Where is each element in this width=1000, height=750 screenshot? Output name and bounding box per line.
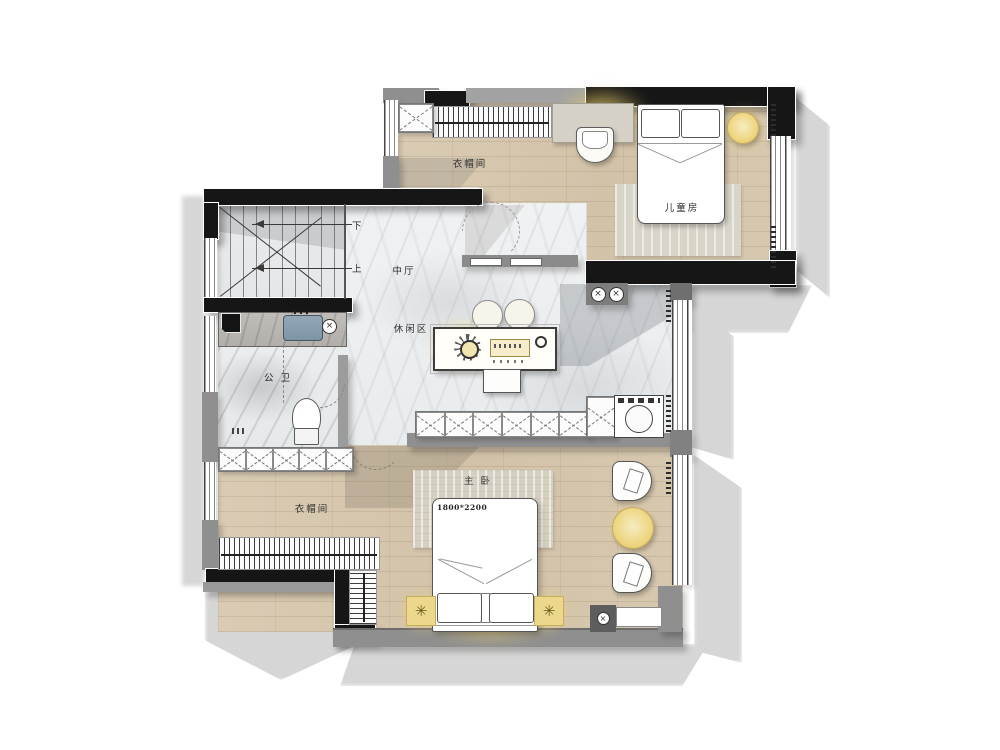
laundry-basket [221, 313, 241, 333]
wall [202, 392, 218, 462]
washer-panel [618, 398, 660, 403]
cabinet-cell [326, 448, 353, 471]
toilet-tank [294, 428, 319, 445]
cabinet-cell [246, 448, 273, 471]
stair-down-arrow [252, 224, 352, 225]
kids-corner-cabinet [398, 103, 434, 133]
cabinet-cell [416, 412, 445, 437]
armchair-cushion [623, 561, 644, 587]
kids-side-table [727, 112, 759, 144]
armchair [612, 553, 652, 593]
valve-icon: × [591, 287, 606, 302]
dimension-marks [666, 460, 671, 494]
tall-cabinet [586, 396, 616, 438]
cabinet-cell [473, 412, 502, 437]
stair-up-arrow [252, 268, 352, 269]
armchair [612, 461, 652, 501]
pillow [437, 593, 482, 623]
master-bedroom-label: 主 卧 [447, 473, 509, 487]
pillow [489, 593, 534, 623]
fixture-box: ×× [586, 283, 628, 305]
leisure-table [433, 327, 557, 371]
small-decor [535, 336, 547, 348]
shadow-below-bottom-wall [340, 644, 708, 686]
sliding-door-leaf [510, 258, 542, 266]
bench [483, 369, 521, 393]
desk-chair [576, 127, 614, 163]
nightstand-lamp: ✳ [534, 596, 564, 626]
window [204, 238, 217, 298]
stair-down-label: 下 [352, 218, 364, 232]
bathroom-storage-cabinets [218, 447, 354, 472]
tray-items [494, 344, 524, 348]
dimension-marks [771, 226, 776, 268]
laundry-counter-cabinets [415, 411, 589, 438]
master-bed: 1800*2200 [432, 498, 538, 632]
stair-rail [344, 204, 346, 299]
pillow [641, 109, 680, 138]
dimension-marks [666, 290, 671, 322]
chair-seat [582, 131, 608, 149]
wall [383, 156, 399, 189]
wall [203, 202, 219, 240]
leisure-area-label: 休闲区 [378, 321, 444, 335]
wall [203, 188, 483, 206]
hall-label: 中厅 [380, 263, 428, 277]
dimension-marks [771, 104, 776, 136]
bed-size-label: 1800*2200 [437, 503, 487, 512]
window [204, 462, 216, 520]
shadow-right-master-window [694, 455, 742, 663]
kids-closet-label: 衣帽间 [440, 156, 500, 170]
master-closet-label: 衣帽间 [282, 501, 342, 515]
window [672, 455, 692, 585]
window [204, 316, 216, 392]
cabinet-cell [219, 448, 246, 471]
window-bench [616, 607, 662, 627]
washer-drum [625, 405, 653, 433]
cabinet-cell [587, 397, 615, 437]
blanket-fold [680, 144, 722, 164]
nightstand-lamp: ✳ [406, 596, 436, 626]
stair-up-label: 上 [352, 261, 364, 275]
floor-drain: × [322, 313, 337, 334]
cabinet-cell [399, 104, 433, 132]
closet-rod-vertical [349, 570, 377, 625]
cabinet-cell [531, 412, 560, 437]
cabinet-cell [445, 412, 474, 437]
cabinet-cell [559, 412, 588, 437]
tray [490, 339, 530, 357]
drain-icon: × [322, 319, 337, 334]
bath-accessory [232, 428, 246, 434]
cabinet-cell [273, 448, 300, 471]
blanket-fold [638, 143, 722, 144]
wall [203, 582, 348, 592]
kids-closet-hanging-rod [432, 106, 552, 138]
sink [283, 315, 323, 341]
master-closet-hanging-rod [218, 537, 380, 570]
sliding-door-leaf [470, 258, 502, 266]
wall [202, 520, 218, 570]
bathroom-partition [338, 355, 348, 448]
wall [670, 430, 692, 457]
kids-room-label: 儿童房 [650, 200, 714, 214]
window [384, 100, 398, 158]
valve-icon: × [609, 287, 624, 302]
bathroom-label: 公 卫 [250, 370, 306, 384]
flower-center [460, 340, 479, 359]
window [672, 300, 692, 432]
armchair-cushion [623, 468, 644, 494]
valve-icon: × [597, 612, 610, 625]
stool [504, 299, 535, 330]
cabinet-cell [502, 412, 531, 437]
footboard-line [433, 625, 534, 626]
cabinet-cell [299, 448, 326, 471]
washing-machine [614, 395, 664, 438]
dots-row [493, 360, 527, 363]
blanket-fold [486, 559, 532, 584]
floor-plan: ×× 下 上 × [0, 0, 1000, 750]
blanket-fold [638, 144, 680, 164]
dimension-marks [666, 392, 671, 432]
faucet-dots [294, 311, 310, 314]
wall [203, 297, 353, 313]
wall [585, 260, 796, 285]
shadow-right-kids [796, 98, 830, 298]
master-side-table [612, 507, 654, 549]
pillow [681, 109, 720, 138]
shadow-left-wall [182, 196, 204, 586]
stairs-floor [218, 203, 345, 300]
control-box: × [590, 605, 616, 632]
